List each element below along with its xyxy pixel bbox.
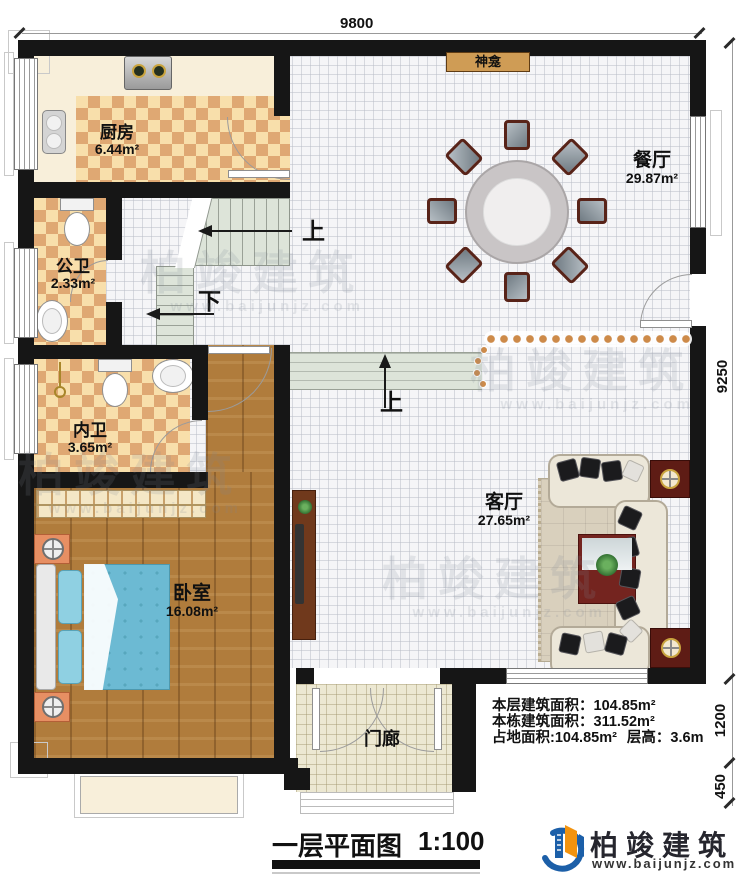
tv [295, 524, 304, 604]
side-table-lamp [661, 638, 681, 658]
plan-title: 一层平面图 1:100 [272, 826, 485, 863]
sofa-pillow [582, 630, 605, 653]
terrace [80, 776, 238, 814]
porch-label: 门廊 [364, 729, 400, 749]
plant [298, 500, 312, 514]
plant [596, 554, 618, 576]
stair-up-arrowhead [198, 225, 212, 237]
area-info: 本层建筑面积：104.85m² 本栋建筑面积：311.52m² 占地面积:104… [492, 698, 703, 746]
entry-door-leaf [640, 320, 692, 328]
dining-chair [504, 272, 530, 302]
porch-door-leaf-right [434, 688, 442, 750]
dimension-line-right [732, 40, 733, 806]
wall-top [18, 40, 706, 56]
toilet-bowl [64, 212, 90, 246]
bead [480, 346, 488, 354]
sofa-pillow [601, 460, 624, 483]
window-sill [4, 52, 14, 176]
sofa-pillow [558, 632, 582, 656]
dimension-width: 9800 [340, 15, 373, 32]
dimension-tick [723, 757, 735, 769]
wall-bedroom-top [18, 472, 208, 488]
wall-right [690, 228, 706, 274]
window-living [506, 668, 648, 684]
wall-right [690, 40, 706, 118]
bead [473, 369, 481, 377]
brand-logo-icon [538, 820, 588, 883]
side-table-lamp [660, 469, 680, 489]
bead [474, 357, 482, 365]
dining-chair [577, 198, 607, 224]
kitchen-door-leaf [228, 170, 290, 178]
dining-label: 餐厅 29.87m² [626, 150, 678, 187]
dimension-steps: 450 [712, 774, 729, 799]
drain-cord [59, 362, 61, 388]
entry-step-arrowhead [379, 354, 391, 368]
window-sill [4, 242, 14, 344]
porch-steps [300, 792, 454, 814]
window-sill [710, 110, 722, 236]
info-land-height: 占地面积:104.85m²层高：3.6m [492, 730, 703, 746]
dimension-tick [723, 37, 735, 49]
sofa-pillow [579, 457, 602, 480]
info-total-area: 本栋建筑面积：311.52m² [492, 714, 703, 730]
plan-title-text: 一层平面图 [272, 826, 402, 863]
wall-bedroom-right [274, 345, 290, 774]
dimension-line-top [22, 33, 702, 34]
bath-sink-basin [160, 365, 186, 387]
dining-chair [427, 198, 457, 224]
wall-kitchen-bottom [18, 182, 290, 198]
private-bath-label: 内卫 3.65m² [68, 421, 112, 456]
wall-bottom-bedroom [18, 758, 298, 774]
entry-step-label: 上 [380, 391, 403, 414]
stove-burner [132, 64, 146, 78]
shrine: 神龛 [446, 52, 530, 72]
wall-public-bath [106, 198, 122, 260]
bead-curtain [486, 334, 690, 345]
wall-right [690, 326, 706, 684]
title-underline [272, 860, 480, 869]
bath-sink-basin [42, 308, 62, 334]
wall-kitchen-right [274, 40, 290, 116]
porch-jamb-left [296, 668, 314, 684]
brand-url: www.baijunjz.com [592, 856, 736, 871]
stair-down-arrowhead [146, 308, 160, 320]
dimension-height: 9250 [714, 360, 731, 393]
sink-basin [46, 115, 62, 131]
wall-private-bath [192, 359, 208, 420]
kitchen-label: 厨房 6.44m² [95, 123, 139, 158]
window-sill [4, 358, 14, 460]
toilet-tank [60, 198, 94, 211]
wardrobe [36, 490, 206, 518]
stair-down-label: 下 [198, 290, 221, 313]
window-kitchen [14, 58, 38, 170]
stair-up-arrow-line [212, 230, 292, 232]
bedroom-label: 卧室 16.08m² [166, 583, 218, 620]
wall-public-bath [106, 302, 122, 345]
stair-up-label: 上 [302, 220, 325, 243]
nightstand-lamp [42, 538, 64, 560]
nightstand-lamp [42, 696, 64, 718]
info-floor-area: 本层建筑面积：104.85m² [492, 698, 703, 714]
toilet-bowl [102, 373, 128, 407]
title-underline-thin [272, 872, 480, 874]
dining-table-top [483, 178, 551, 246]
dimension-tick [723, 673, 735, 685]
pillow [58, 630, 82, 684]
sink-basin [46, 133, 62, 149]
living-label: 客厅 27.65m² [478, 492, 530, 529]
pillow [58, 570, 82, 624]
toilet-tank [98, 359, 132, 372]
floor-drain [54, 386, 66, 398]
plan-scale: 1:100 [418, 826, 485, 863]
porch-door-leaf-left [312, 688, 320, 750]
window-public-bath [14, 248, 38, 338]
stair-down-flight [156, 266, 194, 346]
stove-burner [152, 64, 166, 78]
dimension-porch: 1200 [712, 704, 729, 737]
porch-pillar-left [284, 768, 310, 790]
bedroom-door-leaf [208, 346, 270, 354]
floor-plan: 上 下 上 神龛 [0, 0, 750, 886]
window-private-bath [14, 364, 38, 454]
bead [479, 380, 487, 388]
public-bath-label: 公卫 2.33m² [51, 257, 95, 292]
dining-chair [504, 120, 530, 150]
bed-headboard [36, 564, 56, 690]
window-dining [690, 116, 706, 228]
wall-bath-divider [18, 345, 208, 359]
porch-pillar-right [452, 668, 476, 792]
